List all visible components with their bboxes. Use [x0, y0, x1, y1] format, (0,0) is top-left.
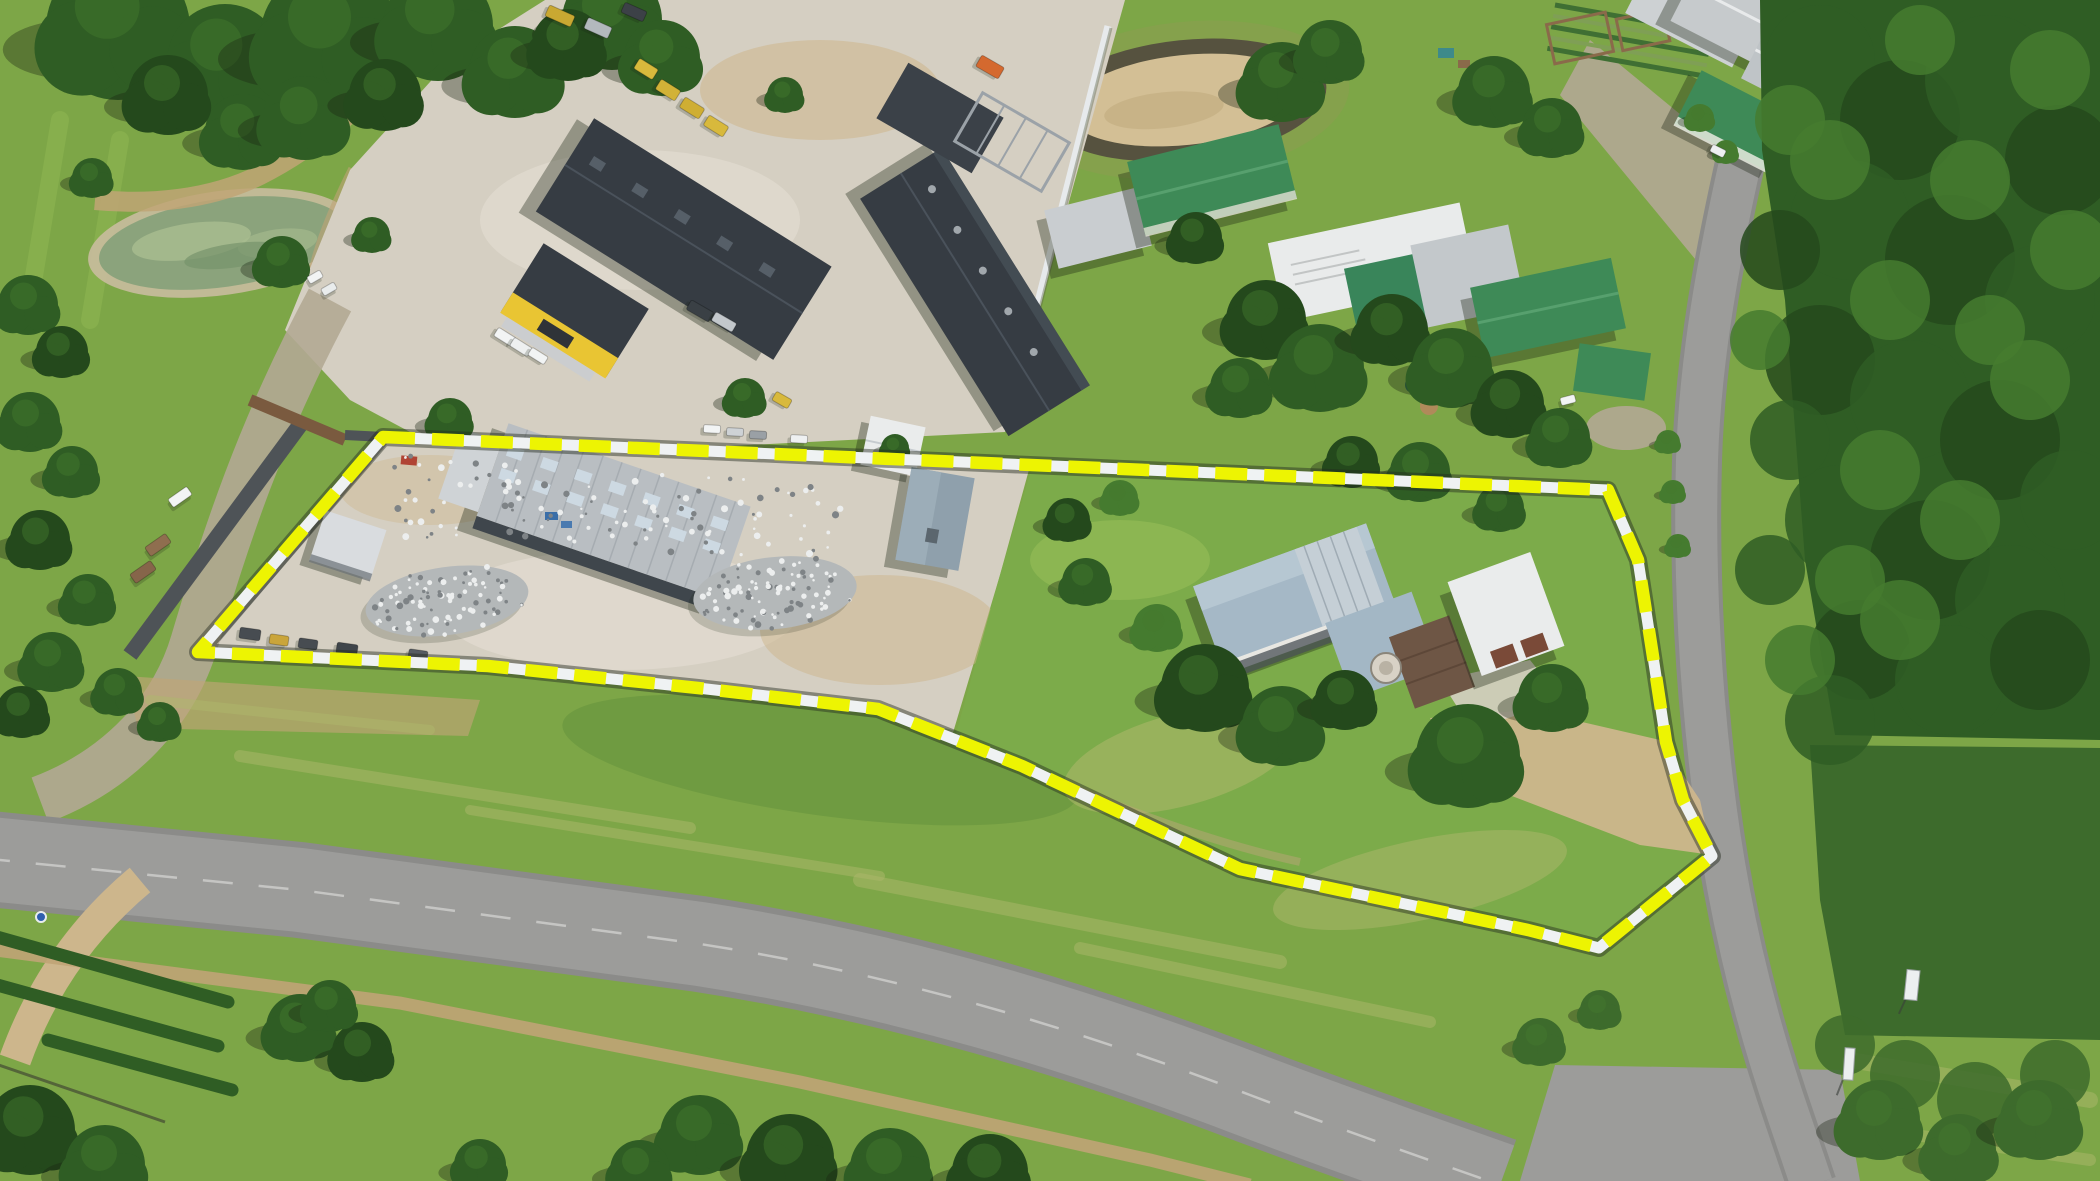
scrub-southeast — [1810, 745, 2100, 1040]
roadside-green-building — [1573, 343, 1651, 401]
rondavel-center — [1379, 661, 1393, 675]
blue-drum — [561, 521, 572, 528]
playground-item — [1458, 60, 1470, 68]
aerial-photo-canvas: Aerial drone photograph of a rural indus… — [0, 0, 2100, 1181]
playground-item — [1438, 48, 1454, 58]
blue-road-sign — [36, 912, 46, 922]
aerial-photo: Aerial drone photograph of a rural indus… — [0, 0, 2100, 1181]
